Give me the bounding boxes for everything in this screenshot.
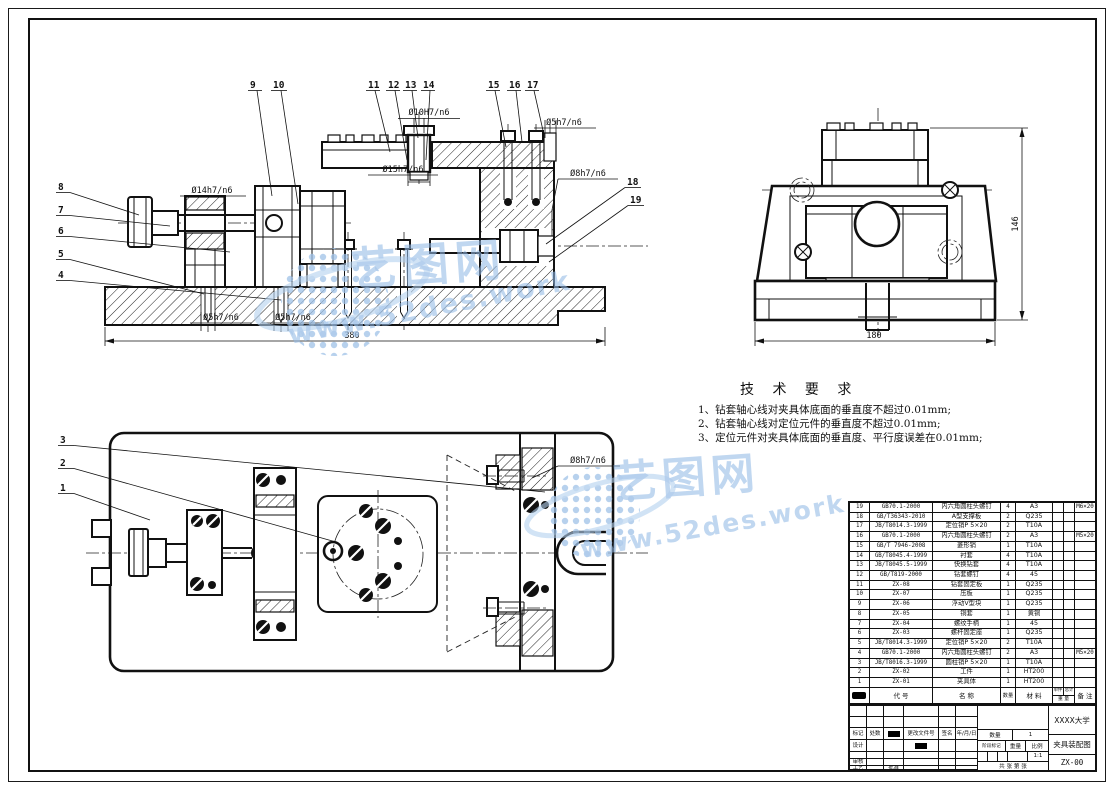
bom-cell-remark: M5×20 <box>1075 532 1095 542</box>
title-block-cell: 年/月/日 <box>956 728 977 740</box>
bom-cell-unit_weight <box>1053 590 1064 600</box>
bom-cell-qty: 4 <box>1001 571 1016 581</box>
drawing-title: 夹具装配图 <box>1049 735 1095 755</box>
redaction-mark <box>888 731 900 737</box>
bom-cell-name: 菱形销 <box>933 542 1001 552</box>
dim-label: 180 <box>866 331 881 341</box>
bom-cell-material: HT200 <box>1016 678 1053 688</box>
bom-cell-unit_weight <box>1053 678 1064 688</box>
dim-label: Ø5h7/n6 <box>546 117 582 128</box>
weight-label: 重量 <box>1006 741 1026 751</box>
bom-cell-no: 7 <box>850 620 870 630</box>
bom-cell-remark <box>1075 513 1095 523</box>
bom-cell-material: T10A <box>1016 522 1053 532</box>
bom-cell-no: 17 <box>850 522 870 532</box>
title-block-cell <box>867 759 884 766</box>
bom-cell-no: 6 <box>850 629 870 639</box>
bom-cell-remark <box>1075 542 1095 552</box>
bom-cell-material: 45 <box>1016 571 1053 581</box>
bom-cell-unit_weight <box>1053 659 1064 669</box>
title-block-cell <box>956 759 977 766</box>
bom-cell-unit_weight <box>1053 620 1064 630</box>
sheet-label: 共 张 第 张 <box>978 762 1048 770</box>
balloon-label: 16 <box>509 80 521 91</box>
bom-cell-material: A3 <box>1016 649 1053 659</box>
bom-cell-remark <box>1075 668 1095 678</box>
bom-cell-remark <box>1075 678 1095 688</box>
title-block-cell <box>939 766 956 770</box>
redaction-mark <box>915 743 927 749</box>
bom-cell-qty: 1 <box>1001 678 1016 688</box>
bom-cell-material: Q235 <box>1016 590 1053 600</box>
bom-row: 14GB/T8045.4-1999衬套4T10A <box>850 552 1095 562</box>
bom-cell-remark <box>1075 600 1095 610</box>
bom-cell-name: 圆柱销P 5×20 <box>933 659 1001 669</box>
bom-header-name: 名 称 <box>933 688 1001 703</box>
bom-row: 6ZX-03螺杆固定座1Q235 <box>850 629 1095 639</box>
bom-cell-name: 内六角圆柱头螺钉 <box>933 532 1001 542</box>
bom-cell-material: 45 <box>1016 620 1053 630</box>
balloon-label: 17 <box>527 80 538 91</box>
bom-header-total-weight: 总计 <box>1064 688 1074 695</box>
bom-cell-total_weight <box>1064 513 1075 523</box>
bom-cell-no: 10 <box>850 590 870 600</box>
redaction-mark <box>852 692 866 699</box>
bom-cell-no: 8 <box>850 610 870 620</box>
bom-cell-code: ZX-01 <box>870 678 933 688</box>
title-block-cell <box>939 717 956 728</box>
bom-cell-total_weight <box>1064 639 1075 649</box>
title-block-cell <box>956 752 977 759</box>
bom-cell-name: A型支撑板 <box>933 513 1001 523</box>
bom-cell-code: GB/T 7946-2008 <box>870 542 933 552</box>
technical-requirements: 技 术 要 求 1、钻套轴心线对夹具体底面的垂直度不超过0.01mm; 2、钻套… <box>698 379 983 445</box>
bom-cell-qty: 2 <box>1001 513 1016 523</box>
bom-header-material: 材 料 <box>1016 688 1053 703</box>
bom-cell-unit_weight <box>1053 513 1064 523</box>
qty-value: 1 <box>1013 730 1048 740</box>
balloon-label: 10 <box>273 80 285 91</box>
bom-cell-code: ZX-06 <box>870 600 933 610</box>
balloon-label: 13 <box>405 80 417 91</box>
title-block-cell <box>939 740 956 752</box>
bom-cell-remark <box>1075 659 1095 669</box>
bom-cell-unit_weight <box>1053 552 1064 562</box>
balloon-label: 18 <box>627 177 639 188</box>
title-block-cell <box>956 740 977 752</box>
title-block-cell: 签名 <box>939 728 956 740</box>
title-block-cell: 工艺 <box>850 766 867 770</box>
tech-requirements-title: 技 术 要 求 <box>740 379 983 399</box>
bom-cell-total_weight <box>1064 629 1075 639</box>
title-block-cell <box>904 752 939 759</box>
bom-body: 19GB70.1-2000内六角圆柱头螺钉4A3M6×2018GB/T36343… <box>850 503 1095 688</box>
bom-cell-qty: 1 <box>1001 620 1016 630</box>
bom-row: 15GB/T 7946-2008菱形销1T10A <box>850 542 1095 552</box>
bom-cell-material: T10A <box>1016 552 1053 562</box>
title-block-cell: 标记 <box>850 728 867 740</box>
bom-cell-remark: M5×20 <box>1075 649 1095 659</box>
title-block-revision-grid: 标记处数更改文件号签名年/月/日设计审核工艺批准 <box>850 706 978 770</box>
bom-header-code: 代 号 <box>870 688 933 703</box>
balloon-label: 11 <box>368 80 380 91</box>
dim-label: Ø15h7/n6 <box>383 164 424 175</box>
qty-label: 数量 <box>978 730 1013 740</box>
bom-cell-total_weight <box>1064 678 1075 688</box>
title-block-cell <box>904 759 939 766</box>
title-block-cell <box>884 752 904 759</box>
title-block-cell <box>904 717 939 728</box>
bom-cell-material: T10A <box>1016 561 1053 571</box>
title-block-cell <box>850 752 867 759</box>
bom-cell-name: 快换钻套 <box>933 561 1001 571</box>
bom-cell-code: ZX-05 <box>870 610 933 620</box>
title-block-cell <box>850 706 867 717</box>
bom-cell-total_weight <box>1064 668 1075 678</box>
bom-cell-no: 3 <box>850 659 870 669</box>
bom-cell-code: ZX-02 <box>870 668 933 678</box>
title-block-cell <box>884 706 904 717</box>
bom-row: 4GB70.1-2000内六角圆柱头螺钉2A3M5×20 <box>850 649 1095 659</box>
bom-cell-name: 浮动V型块 <box>933 600 1001 610</box>
title-block-cell <box>867 740 884 752</box>
balloon-label: 8 <box>58 182 64 193</box>
title-block-cell <box>904 766 939 770</box>
bom-cell-name: 铜套 <box>933 610 1001 620</box>
tech-requirement-item: 2、钻套轴心线对定位元件的垂直度不超过0.01mm; <box>698 417 983 431</box>
bom-cell-code: GB70.1-2000 <box>870 503 933 513</box>
bom-cell-name: 定位销P 5×20 <box>933 639 1001 649</box>
bom-cell-qty: 1 <box>1001 659 1016 669</box>
bom-cell-name: 螺杆固定座 <box>933 629 1001 639</box>
bom-row: 13JB/T8045.5-1999快换钻套4T10A <box>850 561 1095 571</box>
bom-cell-code: ZX-03 <box>870 629 933 639</box>
bom-row: 16GB70.1-2000内六角圆柱头螺钉2A3M5×20 <box>850 532 1095 542</box>
bom-table: 19GB70.1-2000内六角圆柱头螺钉4A3M6×2018GB/T36343… <box>848 501 1097 705</box>
bom-cell-total_weight <box>1064 581 1075 591</box>
bom-cell-unit_weight <box>1053 503 1064 513</box>
side-view: 146 180 <box>755 108 1028 346</box>
bom-cell-qty: 2 <box>1001 649 1016 659</box>
school-name: XXXX大学 <box>1049 706 1095 735</box>
watermark-brand: 艺图网 <box>611 448 761 509</box>
dim-label: Ø8h7/n6 <box>570 168 606 179</box>
bom-row: 3JB/T8016.3-1999圆柱销P 5×201T10A <box>850 659 1095 669</box>
bom-cell-total_weight <box>1064 503 1075 513</box>
bom-cell-name: 内六角圆柱头螺钉 <box>933 649 1001 659</box>
bom-row: 1ZX-01夹具体1HT200 <box>850 678 1095 688</box>
title-block-cell <box>956 766 977 770</box>
drawing-number: ZX-00 <box>1049 755 1095 770</box>
bom-cell-qty: 1 <box>1001 610 1016 620</box>
redaction-mark <box>904 740 939 752</box>
balloon-label: 14 <box>423 80 435 91</box>
bom-cell-code: ZX-04 <box>870 620 933 630</box>
bom-cell-remark <box>1075 629 1095 639</box>
title-block-cell: 更改文件号 <box>904 728 939 740</box>
bom-cell-qty: 1 <box>1001 581 1016 591</box>
bom-cell-qty: 2 <box>1001 532 1016 542</box>
bom-cell-material: 黄铜 <box>1016 610 1053 620</box>
bom-cell-remark <box>1075 620 1095 630</box>
title-block-cell: 处数 <box>867 728 884 740</box>
title-block-cell <box>867 706 884 717</box>
bom-cell-unit_weight <box>1053 542 1064 552</box>
bom-cell-total_weight <box>1064 552 1075 562</box>
balloon-label: 5 <box>58 249 64 260</box>
bom-header-row: 序号 代 号 名 称 数量 材 料 单件 总计 重 量 备 注 <box>850 688 1095 703</box>
bom-cell-total_weight <box>1064 649 1075 659</box>
bom-cell-no: 13 <box>850 561 870 571</box>
bom-cell-remark <box>1075 571 1095 581</box>
bom-cell-total_weight <box>1064 542 1075 552</box>
title-block-cell <box>939 759 956 766</box>
bom-cell-qty: 1 <box>1001 600 1016 610</box>
dim-label: Ø5h7/n6 <box>203 312 239 323</box>
bom-cell-unit_weight <box>1053 532 1064 542</box>
tech-requirement-item: 1、钻套轴心线对夹具体底面的垂直度不超过0.01mm; <box>698 403 983 417</box>
bom-cell-code: GB70.1-2000 <box>870 649 933 659</box>
bom-cell-name: 定位销P 5×20 <box>933 522 1001 532</box>
title-block-cell <box>850 717 867 728</box>
tech-requirement-item: 3、定位元件对夹具体底面的垂直度、平行度误差在0.01mm; <box>698 431 983 445</box>
bom-cell-code: JB/T8016.3-1999 <box>870 659 933 669</box>
bom-cell-material: A3 <box>1016 532 1053 542</box>
bom-cell-name: 衬套 <box>933 552 1001 562</box>
bom-cell-name: 压板 <box>933 590 1001 600</box>
bom-cell-qty: 2 <box>1001 522 1016 532</box>
bom-header-remark: 备 注 <box>1075 688 1095 703</box>
scale-value: 1:1 <box>1028 752 1048 761</box>
bom-row: 18GB/T36343-2010A型支撑板2Q235 <box>850 513 1095 523</box>
bom-cell-remark <box>1075 522 1095 532</box>
bom-row: 5JB/T8014.3-1999定位销P 5×202T10A <box>850 639 1095 649</box>
title-block-middle: 数量 1 阶段标记 重量 比例 1:1 共 张 第 张 <box>978 706 1049 770</box>
balloon-label: 4 <box>58 270 64 281</box>
bom-cell-remark <box>1075 610 1095 620</box>
bom-cell-no: 19 <box>850 503 870 513</box>
bom-cell-total_weight <box>1064 600 1075 610</box>
title-block-cell: 审核 <box>850 759 867 766</box>
bom-header-weight: 单件 总计 重 量 <box>1053 688 1075 703</box>
bom-row: 7ZX-04螺纹手柄145 <box>850 620 1095 630</box>
bom-cell-material: A3 <box>1016 503 1053 513</box>
bom-cell-no: 18 <box>850 513 870 523</box>
bom-row: 11ZX-08钻套固定板1Q235 <box>850 581 1095 591</box>
balloon-label: 12 <box>388 80 399 91</box>
bom-cell-remark <box>1075 581 1095 591</box>
bom-header-weight-label: 重 量 <box>1053 696 1074 703</box>
bom-cell-unit_weight <box>1053 629 1064 639</box>
bom-row: 12GB/T819-2000钻套螺钉445 <box>850 571 1095 581</box>
bom-cell-code: ZX-07 <box>870 590 933 600</box>
bom-cell-code: ZX-08 <box>870 581 933 591</box>
bom-cell-no: 1 <box>850 678 870 688</box>
bom-cell-unit_weight <box>1053 581 1064 591</box>
title-block-right: XXXX大学 夹具装配图 ZX-00 <box>1049 706 1095 770</box>
bom-cell-name: 工件 <box>933 668 1001 678</box>
title-block-cell <box>939 706 956 717</box>
bom-row: 10ZX-07压板1Q235 <box>850 590 1095 600</box>
bom-cell-total_weight <box>1064 571 1075 581</box>
bom-cell-qty: 1 <box>1001 542 1016 552</box>
title-block-cell <box>884 740 904 752</box>
bom-cell-unit_weight <box>1053 649 1064 659</box>
bom-header-qty: 数量 <box>1001 688 1016 703</box>
bom-cell-qty: 1 <box>1001 629 1016 639</box>
bom-cell-unit_weight <box>1053 610 1064 620</box>
bom-cell-material: HT200 <box>1016 668 1053 678</box>
bom-cell-no: 12 <box>850 571 870 581</box>
dim-label: 146 <box>1011 216 1021 231</box>
bom-cell-unit_weight <box>1053 668 1064 678</box>
scale-label: 比例 <box>1026 741 1048 751</box>
balloon-label: 2 <box>60 458 66 469</box>
bom-cell-remark <box>1075 639 1095 649</box>
bom-cell-material: T10A <box>1016 639 1053 649</box>
dim-label: Ø8h7/n6 <box>570 455 606 466</box>
bom-cell-qty: 1 <box>1001 668 1016 678</box>
bom-cell-code: JB/T8014.3-1999 <box>870 522 933 532</box>
title-block-cell: 批准 <box>884 766 904 770</box>
plan-view: 3 2 1 Ø8h7/n6 <box>58 433 648 671</box>
title-block-cell <box>884 717 904 728</box>
balloon-label: 3 <box>60 435 66 446</box>
bom-row: 19GB70.1-2000内六角圆柱头螺钉4A3M6×20 <box>850 503 1095 513</box>
bom-cell-no: 2 <box>850 668 870 678</box>
bom-cell-code: GB/T8045.4-1999 <box>870 552 933 562</box>
bom-cell-total_weight <box>1064 590 1075 600</box>
bom-cell-total_weight <box>1064 659 1075 669</box>
bom-cell-code: GB/T819-2000 <box>870 571 933 581</box>
bom-cell-unit_weight <box>1053 561 1064 571</box>
bom-cell-qty: 4 <box>1001 561 1016 571</box>
redaction-mark <box>884 728 904 740</box>
bom-cell-name: 钻套螺钉 <box>933 571 1001 581</box>
title-block-cell <box>956 706 977 717</box>
title-block-cell <box>939 752 956 759</box>
balloon-label: 9 <box>250 80 256 91</box>
bom-cell-material: T10A <box>1016 659 1053 669</box>
bom-cell-no: 11 <box>850 581 870 591</box>
bom-cell-unit_weight <box>1053 600 1064 610</box>
bom-cell-no: 15 <box>850 542 870 552</box>
bom-cell-remark <box>1075 552 1095 562</box>
bom-cell-no: 14 <box>850 552 870 562</box>
bom-cell-name: 钻套固定板 <box>933 581 1001 591</box>
bom-cell-qty: 4 <box>1001 503 1016 513</box>
drawing-sheet: Ø10H7/n6 Ø5h7/n6 Ø15h7/n6 Ø8h7/n6 Ø14h7/… <box>0 0 1116 791</box>
title-block-cell <box>867 752 884 759</box>
bom-cell-total_weight <box>1064 561 1075 571</box>
bom-row: 9ZX-06浮动V型块1Q235 <box>850 600 1095 610</box>
bom-cell-code: GB/T36343-2010 <box>870 513 933 523</box>
bom-cell-unit_weight <box>1053 571 1064 581</box>
bom-cell-code: GB70.1-2000 <box>870 532 933 542</box>
balloon-label: 15 <box>488 80 500 91</box>
title-block-cell <box>867 766 884 770</box>
bom-row: 8ZX-05铜套1黄铜 <box>850 610 1095 620</box>
bom-header-unit-weight: 单件 <box>1053 688 1064 695</box>
bom-cell-remark <box>1075 561 1095 571</box>
bom-cell-no: 9 <box>850 600 870 610</box>
title-block-cell <box>956 717 977 728</box>
bom-cell-qty: 1 <box>1001 590 1016 600</box>
balloon-label: 1 <box>60 483 66 494</box>
bom-cell-total_weight <box>1064 610 1075 620</box>
bom-row: 2ZX-02工件1HT200 <box>850 668 1095 678</box>
bom-cell-material: Q235 <box>1016 581 1053 591</box>
title-block-cell <box>904 706 939 717</box>
title-block: 标记处数更改文件号签名年/月/日设计审核工艺批准 数量 1 阶段标记 重量 比例… <box>848 704 1097 772</box>
dim-label: Ø14h7/n6 <box>192 185 233 196</box>
bom-cell-name: 内六角圆柱头螺钉 <box>933 503 1001 513</box>
bom-cell-total_weight <box>1064 620 1075 630</box>
bom-cell-no: 16 <box>850 532 870 542</box>
bom-cell-material: T10A <box>1016 542 1053 552</box>
bom-cell-qty: 2 <box>1001 639 1016 649</box>
bom-cell-total_weight <box>1064 522 1075 532</box>
title-block-cell <box>884 759 904 766</box>
bom-cell-name: 螺纹手柄 <box>933 620 1001 630</box>
bom-cell-no: 5 <box>850 639 870 649</box>
bom-cell-code: JB/T8045.5-1999 <box>870 561 933 571</box>
bom-cell-unit_weight <box>1053 639 1064 649</box>
balloon-label: 6 <box>58 226 64 237</box>
bom-cell-name: 夹具体 <box>933 678 1001 688</box>
bom-cell-material: Q235 <box>1016 600 1053 610</box>
balloon-label: 19 <box>630 195 642 206</box>
bom-cell-remark <box>1075 590 1095 600</box>
bom-cell-remark: M6×20 <box>1075 503 1095 513</box>
bom-cell-qty: 4 <box>1001 552 1016 562</box>
bom-cell-material: Q235 <box>1016 629 1053 639</box>
bom-cell-code: JB/T8014.3-1999 <box>870 639 933 649</box>
stage-label: 阶段标记 <box>978 741 1006 751</box>
bom-cell-unit_weight <box>1053 522 1064 532</box>
bom-row: 17JB/T8014.3-1999定位销P 5×202T10A <box>850 522 1095 532</box>
title-block-cell: 设计 <box>850 740 867 752</box>
title-block-cell <box>867 717 884 728</box>
balloon-label: 7 <box>58 205 64 216</box>
bom-cell-total_weight <box>1064 532 1075 542</box>
bom-cell-material: Q235 <box>1016 513 1053 523</box>
bom-cell-no: 4 <box>850 649 870 659</box>
